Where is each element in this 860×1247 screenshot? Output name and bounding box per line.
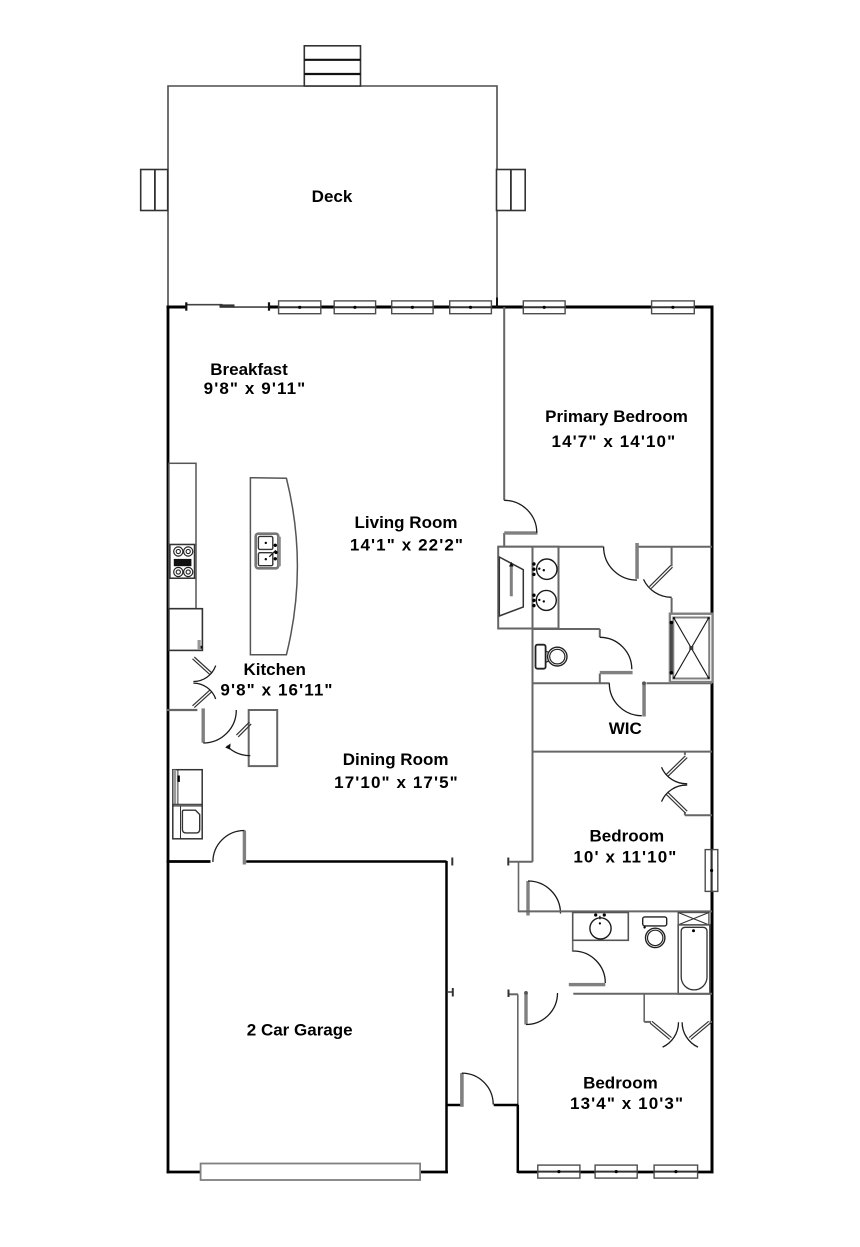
svg-text:9'8" x 9'11": 9'8" x 9'11" (204, 379, 307, 398)
svg-text:Bedroom: Bedroom (589, 827, 664, 846)
svg-text:13'4" x 10'3": 13'4" x 10'3" (570, 1094, 684, 1113)
svg-text:Dining Room: Dining Room (343, 750, 449, 769)
svg-text:Primary Bedroom: Primary Bedroom (545, 407, 688, 426)
svg-text:Living Room: Living Room (355, 513, 458, 532)
svg-text:Deck: Deck (312, 187, 353, 206)
svg-text:Breakfast: Breakfast (210, 360, 288, 379)
svg-text:9'8" x 16'11": 9'8" x 16'11" (220, 681, 333, 700)
svg-text:WIC: WIC (609, 719, 642, 738)
svg-text:Kitchen: Kitchen (244, 660, 306, 679)
svg-text:2 Car Garage: 2 Car Garage (247, 1021, 353, 1040)
svg-text:14'1" x 22'2": 14'1" x 22'2" (350, 536, 464, 555)
svg-text:Bedroom: Bedroom (583, 1074, 658, 1093)
svg-text:17'10" x 17'5": 17'10" x 17'5" (334, 773, 459, 792)
svg-text:14'7" x 14'10": 14'7" x 14'10" (552, 432, 677, 451)
svg-text:10' x 11'10": 10' x 11'10" (573, 848, 677, 867)
